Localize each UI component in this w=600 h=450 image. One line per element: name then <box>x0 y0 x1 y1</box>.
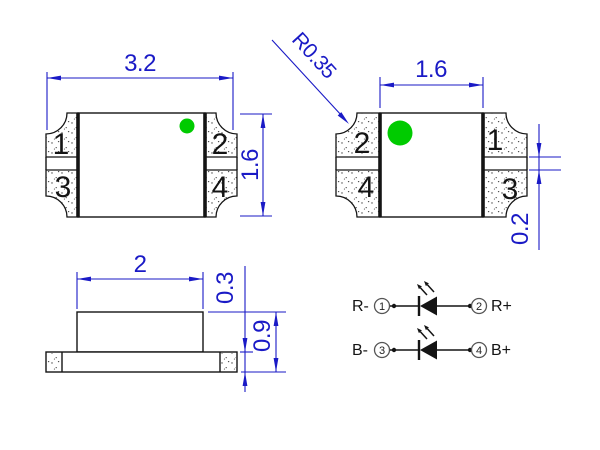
terminal-label: B+ <box>491 342 511 359</box>
arrowhead <box>189 277 203 282</box>
emission-ray <box>427 285 434 292</box>
emission-ray <box>420 332 427 339</box>
cathode-marker-dot <box>388 121 413 146</box>
pin-number: 3 <box>379 345 385 357</box>
pad-number: 4 <box>358 171 375 204</box>
dimension-text: 0.9 <box>249 320 276 352</box>
lens-block-outline <box>77 312 203 352</box>
arrowhead <box>537 143 542 157</box>
arrowhead <box>219 76 233 81</box>
arrowhead <box>261 202 266 216</box>
pin-number: 1 <box>379 301 385 313</box>
circuit-diagram: R- 1 2 R+ B- 3 <box>352 281 512 360</box>
pad-number: 3 <box>502 173 519 206</box>
arrowhead <box>77 277 91 282</box>
emission-ray <box>427 329 434 336</box>
base-flange-outline <box>46 352 237 372</box>
technical-drawing-canvas: 1 2 3 4 3.2 1.6 <box>0 0 600 450</box>
arrowhead <box>380 83 394 88</box>
terminal-cap <box>221 353 236 371</box>
dimension-text: 1.6 <box>415 56 447 83</box>
terminal-label: R- <box>352 298 369 315</box>
dim-base-thickness-0-3: 0.3 <box>212 266 247 392</box>
radius-text: R0.35 <box>287 28 340 83</box>
emission-ray <box>420 288 427 295</box>
pin-number: 4 <box>476 345 482 357</box>
terminal-label: B- <box>352 342 368 359</box>
arrowhead <box>469 83 483 88</box>
cathode-marker-dot <box>180 119 195 134</box>
bottom-view: 2 1 4 3 1.6 R0.35 0.2 <box>272 28 561 250</box>
dim-height-1-6: 1.6 <box>237 114 272 216</box>
circuit-row-blue: B- 3 4 B+ <box>352 325 511 360</box>
circuit-row-red: R- 1 2 R+ <box>352 281 512 316</box>
dimension-text: 0.3 <box>212 272 239 304</box>
pad-number: 4 <box>212 171 229 204</box>
diode-triangle <box>420 297 437 316</box>
led-symbol <box>417 325 437 360</box>
pad-number: 1 <box>487 124 504 157</box>
radius-callout-r0-35: R0.35 <box>272 28 349 124</box>
arrowhead <box>261 114 266 128</box>
dimension-text: 3.2 <box>124 50 156 77</box>
top-view: 1 2 3 4 3.2 1.6 <box>46 50 272 217</box>
dimension-text: 0.2 <box>507 213 534 245</box>
terminal-label: R+ <box>491 298 512 315</box>
dimension-text: 1.6 <box>237 149 264 181</box>
pad-number: 3 <box>55 171 72 204</box>
pad-number: 2 <box>354 127 371 160</box>
diode-triangle <box>420 341 437 360</box>
dimension-text: 2 <box>134 251 147 278</box>
led-symbol <box>417 281 437 316</box>
side-view: 2 0.3 0.9 <box>46 251 286 392</box>
pad-number: 2 <box>212 128 229 161</box>
terminal-cap <box>47 353 61 371</box>
dim-inner-width-1-6: 1.6 <box>380 56 483 108</box>
dim-height-0-9: 0.9 <box>249 312 278 372</box>
pad-number: 1 <box>53 128 70 161</box>
dim-top-width-2: 2 <box>77 251 203 309</box>
arrowhead <box>47 76 61 81</box>
arrowhead <box>537 170 542 184</box>
pin-number: 2 <box>476 301 482 313</box>
led-package-drawing: 1 2 3 4 3.2 1.6 <box>0 0 600 450</box>
arrowhead <box>243 338 248 352</box>
arrowhead <box>243 372 248 386</box>
arrowhead <box>274 358 279 372</box>
